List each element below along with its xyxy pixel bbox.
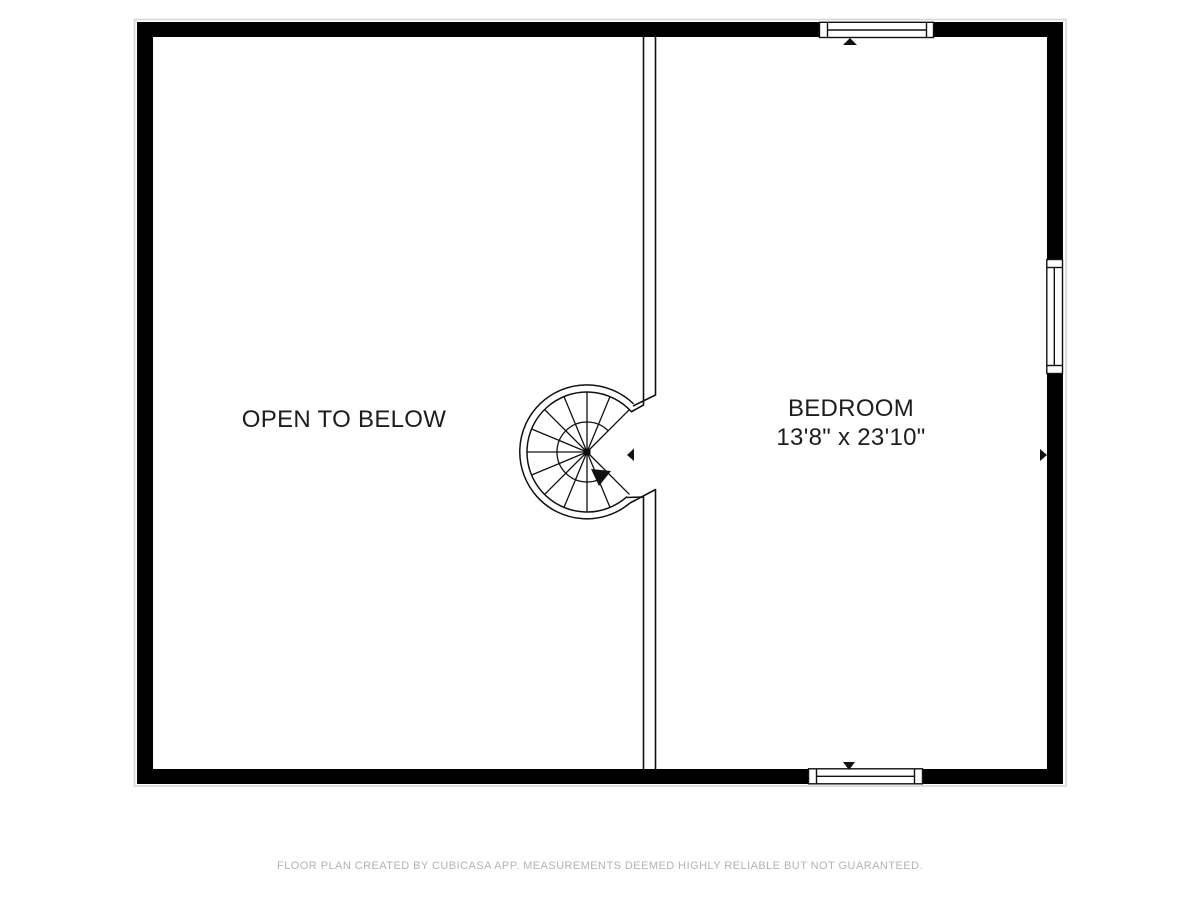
window-right (1047, 260, 1063, 374)
stair-treads (527, 392, 629, 512)
wall-arrow-right-icon (1040, 449, 1047, 461)
stair-center-post (584, 449, 591, 456)
window-bottom (809, 769, 923, 784)
wall-shadow (135, 20, 1067, 787)
footer-disclaimer: FLOOR PLAN CREATED BY CUBICASA APP. MEAS… (277, 860, 923, 872)
window-arrow-top-icon (843, 38, 857, 45)
window-top (820, 22, 934, 37)
partition-wall-upper (631, 37, 656, 412)
spiral-staircase (520, 385, 634, 519)
stair-entry-arrow-icon (627, 449, 634, 462)
room-label-bedroom: BEDROOM 13'8" x 23'10" (776, 394, 925, 452)
partition-wall-lower (627, 490, 656, 770)
room-dimensions-bedroom: 13'8" x 23'10" (776, 423, 925, 452)
stair-direction-arrow-icon (591, 469, 611, 486)
floor-plan-svg (0, 0, 1200, 900)
floor-plan-canvas: OPEN TO BELOW BEDROOM 13'8" x 23'10" FLO… (0, 0, 1200, 900)
room-name-bedroom: BEDROOM (776, 394, 925, 423)
room-label-open-to-below: OPEN TO BELOW (242, 406, 446, 434)
